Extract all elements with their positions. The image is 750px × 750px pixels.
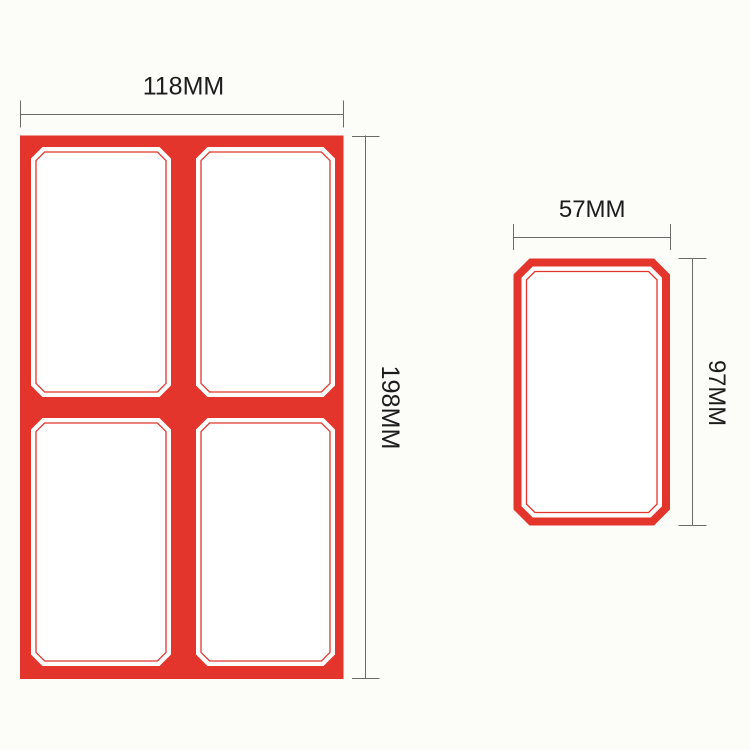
svg-text:118MM: 118MM bbox=[143, 73, 225, 101]
svg-text:198MM: 198MM bbox=[376, 366, 404, 450]
svg-text:57MM: 57MM bbox=[559, 196, 626, 223]
svg-text:97MM: 97MM bbox=[703, 360, 730, 426]
